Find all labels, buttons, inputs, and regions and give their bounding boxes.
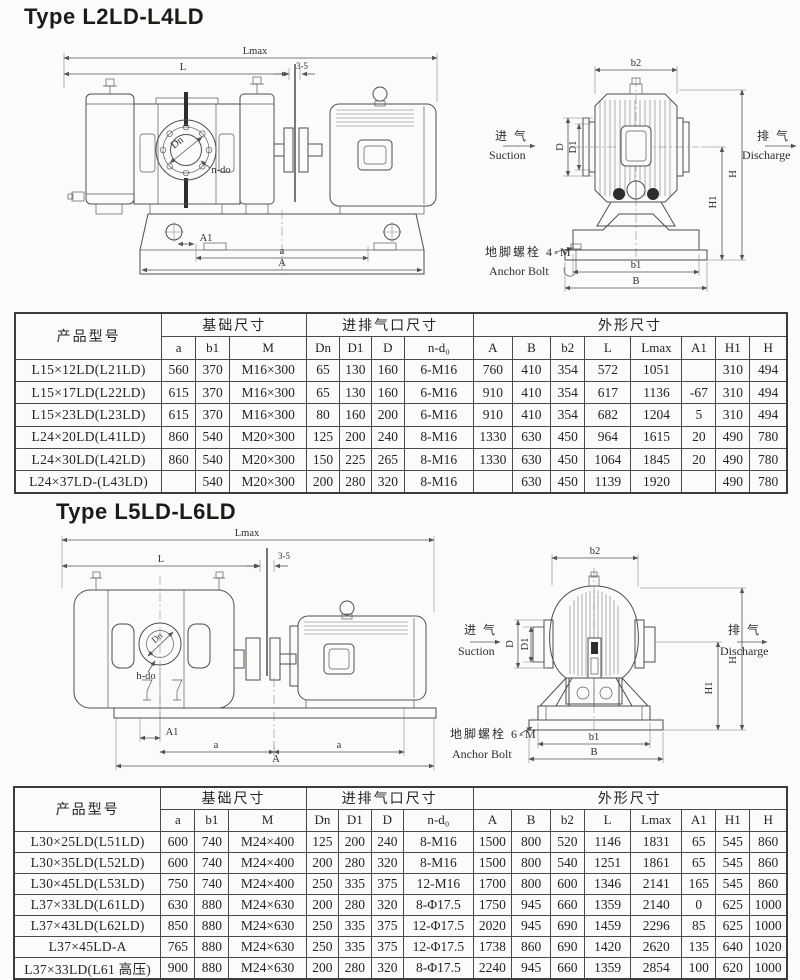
value-cell: 200 xyxy=(306,957,338,979)
value-cell: 800 xyxy=(512,831,551,852)
col-header-model: 产品型号 xyxy=(14,787,161,831)
value-cell: 410 xyxy=(512,359,551,381)
col-header: L xyxy=(584,809,630,831)
col-group-header: 进排气口尺寸 xyxy=(307,313,474,336)
value-cell: 620 xyxy=(716,957,750,979)
value-cell: 1000 xyxy=(750,957,787,979)
dim-lmax-label: Lmax xyxy=(243,46,268,57)
anchor-bolt-label-cn: 地脚螺栓 6-M xyxy=(450,726,538,741)
value-cell: 240 xyxy=(371,831,403,852)
value-cell: 780 xyxy=(750,426,787,448)
dim-b1-label: b1 xyxy=(589,732,600,743)
value-cell: 250 xyxy=(306,936,338,957)
motor-side-outline xyxy=(274,87,436,214)
col-header-model: 产品型号 xyxy=(15,313,162,359)
value-cell: 740 xyxy=(195,873,229,894)
value-cell: 200 xyxy=(339,426,371,448)
value-cell: 540 xyxy=(550,852,584,873)
value-cell: 494 xyxy=(750,381,787,403)
value-cell: 320 xyxy=(371,894,403,915)
lifting-eye xyxy=(340,601,354,615)
value-cell: 250 xyxy=(306,915,338,936)
anchor-bolt-label-en: Anchor Bolt xyxy=(452,747,512,761)
dim-A-label: A xyxy=(278,258,286,269)
table-row: L24×37LD-(L43LD)540M20×3002002803208-M16… xyxy=(15,471,787,493)
value-cell: 880 xyxy=(195,915,229,936)
value-cell: 780 xyxy=(750,471,787,493)
value-cell: M24×630 xyxy=(229,894,306,915)
value-cell: 850 xyxy=(161,915,195,936)
value-cell xyxy=(682,471,716,493)
value-cell: 860 xyxy=(512,936,551,957)
dim-gap-label: 3-5 xyxy=(296,61,308,71)
model-cell: L37×33LD(L61 高压) xyxy=(14,957,161,979)
dim-d-label: D xyxy=(505,640,516,648)
col-header: D1 xyxy=(339,809,371,831)
dim-dn-label: Dn xyxy=(169,134,186,151)
value-cell: 65 xyxy=(682,831,716,852)
col-group-header: 基础尺寸 xyxy=(162,313,307,336)
table-row: L15×23LD(L23LD)615370M16×300801602006-M1… xyxy=(15,404,787,426)
model-cell: L37×43LD(L62LD) xyxy=(14,915,161,936)
value-cell: M20×300 xyxy=(230,449,307,471)
col-header: a xyxy=(162,336,196,359)
value-cell: 740 xyxy=(195,852,229,873)
value-cell: 1000 xyxy=(750,915,787,936)
col-group-header: 进排气口尺寸 xyxy=(306,787,473,809)
value-cell: 2240 xyxy=(473,957,512,979)
suction-label-cn: 进 气 xyxy=(464,622,497,637)
value-cell: 8-Φ17.5 xyxy=(404,957,474,979)
value-cell: 160 xyxy=(372,381,404,403)
col-group-header: 外形尺寸 xyxy=(473,787,787,809)
dim-h1-label: H1 xyxy=(708,196,719,209)
value-cell: 740 xyxy=(195,831,229,852)
value-cell: 1750 xyxy=(473,894,512,915)
col-header: D1 xyxy=(339,336,371,359)
dim-d1-label: D1 xyxy=(568,141,579,154)
value-cell: 860 xyxy=(162,426,196,448)
value-cell: 1204 xyxy=(631,404,682,426)
value-cell: 750 xyxy=(161,873,195,894)
col-header: M xyxy=(230,336,307,359)
col-header: B xyxy=(512,809,551,831)
value-cell: 630 xyxy=(512,426,551,448)
dim-h-label: H xyxy=(728,656,739,664)
model-cell: L30×25LD(L51LD) xyxy=(14,831,161,852)
col-header: Lmax xyxy=(631,809,682,831)
dim-B-label: B xyxy=(632,276,639,287)
value-cell: 310 xyxy=(716,381,750,403)
dim-h1-label: H1 xyxy=(704,682,715,695)
dim-h-label: H xyxy=(728,170,739,178)
value-cell: 1845 xyxy=(631,449,682,471)
value-cell: 85 xyxy=(682,915,716,936)
value-cell: 800 xyxy=(512,852,551,873)
section1-table-wrap: 产品型号基础尺寸进排气口尺寸外形尺寸ab1MDnD1Dn-d₀ABb2LLmax… xyxy=(14,312,788,494)
value-cell: 945 xyxy=(512,915,551,936)
value-cell: 280 xyxy=(339,894,371,915)
value-cell: 572 xyxy=(585,359,631,381)
table-row: L37×33LD(L61 高压)900880M24×6302002803208-… xyxy=(14,957,787,979)
value-cell: 1064 xyxy=(585,449,631,471)
value-cell: 160 xyxy=(372,359,404,381)
suction-label-en: Suction xyxy=(458,644,495,658)
value-cell: 200 xyxy=(372,404,404,426)
col-header: Dn xyxy=(306,809,338,831)
value-cell: 0 xyxy=(682,894,716,915)
col-group-header: 基础尺寸 xyxy=(161,787,306,809)
col-header: b1 xyxy=(196,336,230,359)
value-cell: 625 xyxy=(716,894,750,915)
value-cell: -67 xyxy=(682,381,716,403)
value-cell: 2620 xyxy=(631,936,682,957)
value-cell: 945 xyxy=(512,894,551,915)
value-cell: 1359 xyxy=(584,894,630,915)
model-cell: L37×33LD(L61LD) xyxy=(14,894,161,915)
value-cell: 1920 xyxy=(631,471,682,493)
value-cell: 8-Φ17.5 xyxy=(404,894,474,915)
col-header: M xyxy=(229,809,306,831)
col-header: D xyxy=(371,809,403,831)
spec-table-l2ld-l4ld: 产品型号基础尺寸进排气口尺寸外形尺寸ab1MDnD1Dn-d₀ABb2LLmax… xyxy=(14,312,788,494)
section2-end-view-drawing: b2 D D1 进 气 Suction 排 气 Discharge H H1 地… xyxy=(442,528,800,780)
value-cell: 200 xyxy=(306,894,338,915)
value-cell: 860 xyxy=(750,831,787,852)
spec-table-l5ld-l6ld: 产品型号基础尺寸进排气口尺寸外形尺寸ab1MDnD1Dn-d₀ABb2LLmax… xyxy=(13,786,788,980)
value-cell: 6-M16 xyxy=(404,404,473,426)
value-cell: 540 xyxy=(196,426,230,448)
value-cell: 1020 xyxy=(750,936,787,957)
value-cell: 1861 xyxy=(631,852,682,873)
dim-ndo-label: n-do xyxy=(211,165,230,176)
col-header: Dn xyxy=(307,336,339,359)
discharge-label-en: Discharge xyxy=(720,644,768,658)
value-cell: 8-M16 xyxy=(404,471,473,493)
value-cell: 545 xyxy=(716,852,750,873)
value-cell: M24×400 xyxy=(229,852,306,873)
col-header: A xyxy=(473,809,512,831)
value-cell: 354 xyxy=(551,381,585,403)
dim-a1-label: A1 xyxy=(166,727,179,738)
col-header: D xyxy=(372,336,404,359)
table-row: L15×12LD(L21LD)560370M16×300651301606-M1… xyxy=(15,359,787,381)
value-cell: 625 xyxy=(716,915,750,936)
suction-label-en: Suction xyxy=(489,148,526,162)
value-cell: 490 xyxy=(716,426,750,448)
value-cell: 545 xyxy=(716,831,750,852)
value-cell: 225 xyxy=(339,449,371,471)
value-cell: 630 xyxy=(161,894,195,915)
value-cell: 780 xyxy=(750,449,787,471)
value-cell: 200 xyxy=(339,831,371,852)
value-cell: 200 xyxy=(306,852,338,873)
value-cell: 320 xyxy=(371,957,403,979)
table-row: L30×45LD(L53LD)750740M24×40025033537512-… xyxy=(14,873,787,894)
table-row: L37×45LD-A765880M24×63025033537512-Φ17.5… xyxy=(14,936,787,957)
value-cell: M20×300 xyxy=(230,426,307,448)
value-cell: 250 xyxy=(306,873,338,894)
lifting-eye xyxy=(373,87,387,101)
value-cell: 8-M16 xyxy=(404,852,474,873)
value-cell: 240 xyxy=(372,426,404,448)
model-cell: L15×17LD(L22LD) xyxy=(15,381,162,403)
section2-title: Type L5LD-L6LD xyxy=(56,499,236,525)
col-header: A xyxy=(474,336,513,359)
value-cell: 880 xyxy=(195,894,229,915)
value-cell: 630 xyxy=(512,471,551,493)
value-cell: 615 xyxy=(162,404,196,426)
dim-A-label: A xyxy=(272,754,280,765)
value-cell: 65 xyxy=(307,359,339,381)
value-cell xyxy=(682,359,716,381)
value-cell: 165 xyxy=(682,873,716,894)
value-cell: 354 xyxy=(551,404,585,426)
value-cell: 1139 xyxy=(585,471,631,493)
value-cell: 2296 xyxy=(631,915,682,936)
value-cell: 900 xyxy=(161,957,195,979)
value-cell: 280 xyxy=(339,957,371,979)
value-cell: 6-M16 xyxy=(404,381,473,403)
col-header: H1 xyxy=(716,336,750,359)
col-header: Lmax xyxy=(631,336,682,359)
model-cell: L15×12LD(L21LD) xyxy=(15,359,162,381)
value-cell: 8-M16 xyxy=(404,831,474,852)
value-cell: 1459 xyxy=(584,915,630,936)
value-cell: 630 xyxy=(512,449,551,471)
value-cell: 1346 xyxy=(584,873,630,894)
dim-dn-label: Dn xyxy=(150,630,165,645)
dim-l-label: L xyxy=(158,554,164,565)
value-cell: 1500 xyxy=(473,831,512,852)
value-cell: 20 xyxy=(682,426,716,448)
value-cell: 370 xyxy=(196,404,230,426)
value-cell: 660 xyxy=(550,957,584,979)
value-cell: 375 xyxy=(371,915,403,936)
table-row: L30×35LD(L52LD)600740M24×4002002803208-M… xyxy=(14,852,787,873)
value-cell: M24×630 xyxy=(229,915,306,936)
value-cell: 1831 xyxy=(631,831,682,852)
value-cell: M24×400 xyxy=(229,831,306,852)
value-cell: 135 xyxy=(682,936,716,957)
value-cell: 65 xyxy=(682,852,716,873)
table-row: L30×25LD(L51LD)600740M24×4001252002408-M… xyxy=(14,831,787,852)
value-cell: 660 xyxy=(550,894,584,915)
discharge-label-cn: 排 气 xyxy=(757,128,790,143)
value-cell: 410 xyxy=(512,404,551,426)
value-cell: 860 xyxy=(750,873,787,894)
anchor-bolt-label-cn: 地脚螺栓 4-M xyxy=(485,244,573,259)
col-header: b2 xyxy=(551,336,585,359)
value-cell: 690 xyxy=(550,915,584,936)
col-header: b2 xyxy=(550,809,584,831)
section1-side-view-drawing: Lmax L 3-5 Dn n-do xyxy=(58,44,445,308)
value-cell: 2854 xyxy=(631,957,682,979)
value-cell: 1500 xyxy=(473,852,512,873)
value-cell: 320 xyxy=(372,471,404,493)
col-group-header: 外形尺寸 xyxy=(474,313,787,336)
dim-b1-label: b1 xyxy=(631,260,642,271)
value-cell: 280 xyxy=(339,471,371,493)
value-cell: 690 xyxy=(550,936,584,957)
anchor-bolt-label-en: Anchor Bolt xyxy=(489,264,549,278)
value-cell: 130 xyxy=(339,381,371,403)
value-cell: 1051 xyxy=(631,359,682,381)
value-cell: 800 xyxy=(512,873,551,894)
col-header: H xyxy=(750,336,787,359)
value-cell: M16×300 xyxy=(230,404,307,426)
value-cell: 490 xyxy=(716,471,750,493)
value-cell: 450 xyxy=(551,449,585,471)
value-cell: 65 xyxy=(307,381,339,403)
value-cell: 1136 xyxy=(631,381,682,403)
value-cell: 1615 xyxy=(631,426,682,448)
discharge-label-cn: 排 气 xyxy=(728,622,761,637)
dim-gap-label: 3-5 xyxy=(278,551,290,561)
catalog-page: { "sections": [ { "title": "Type L2LD-L4… xyxy=(0,0,800,976)
baseplate-side xyxy=(114,708,436,718)
model-cell: L24×20LD(L41LD) xyxy=(15,426,162,448)
col-header: B xyxy=(512,336,551,359)
dim-l-label: L xyxy=(180,62,186,73)
section1-title: Type L2LD-L4LD xyxy=(24,4,204,30)
value-cell: 600 xyxy=(161,852,195,873)
value-cell: 1700 xyxy=(473,873,512,894)
model-cell: L30×45LD(L53LD) xyxy=(14,873,161,894)
value-cell: 560 xyxy=(162,359,196,381)
dim-B-label: B xyxy=(590,747,597,758)
value-cell: 860 xyxy=(750,852,787,873)
value-cell: 1738 xyxy=(473,936,512,957)
value-cell: 2140 xyxy=(631,894,682,915)
value-cell: 375 xyxy=(371,936,403,957)
value-cell: M16×300 xyxy=(230,359,307,381)
value-cell xyxy=(474,471,513,493)
value-cell: 5 xyxy=(682,404,716,426)
dim-a-right-label: a xyxy=(337,740,342,751)
value-cell: M24×630 xyxy=(229,957,306,979)
value-cell: 6-M16 xyxy=(404,359,473,381)
value-cell: 335 xyxy=(339,936,371,957)
value-cell xyxy=(162,471,196,493)
value-cell: 682 xyxy=(585,404,631,426)
dim-a-label: a xyxy=(280,246,285,257)
value-cell: 617 xyxy=(585,381,631,403)
value-cell: 12-Φ17.5 xyxy=(404,915,474,936)
value-cell: 880 xyxy=(195,936,229,957)
dim-lmax-label: Lmax xyxy=(235,528,260,539)
value-cell: M20×300 xyxy=(230,471,307,493)
dim-a-left-label: a xyxy=(214,740,219,751)
value-cell: 370 xyxy=(196,381,230,403)
value-cell: 354 xyxy=(551,359,585,381)
value-cell: 1146 xyxy=(584,831,630,852)
value-cell: M24×630 xyxy=(229,936,306,957)
value-cell: 540 xyxy=(196,449,230,471)
value-cell: 1359 xyxy=(584,957,630,979)
value-cell: 494 xyxy=(750,404,787,426)
value-cell: 600 xyxy=(550,873,584,894)
value-cell: 310 xyxy=(716,404,750,426)
value-cell: 280 xyxy=(339,852,371,873)
col-header: A1 xyxy=(682,809,716,831)
value-cell: 20 xyxy=(682,449,716,471)
table-row: L37×33LD(L61LD)630880M24×6302002803208-Φ… xyxy=(14,894,787,915)
suction-label-cn: 进 气 xyxy=(495,128,528,143)
value-cell: 80 xyxy=(307,404,339,426)
value-cell: 370 xyxy=(196,359,230,381)
dim-d1-label: D1 xyxy=(520,638,531,651)
section2-table-wrap: 产品型号基础尺寸进排气口尺寸外形尺寸ab1MDnD1Dn-d₀ABb2LLmax… xyxy=(13,786,788,980)
value-cell: 1420 xyxy=(584,936,630,957)
value-cell: 265 xyxy=(372,449,404,471)
value-cell: 520 xyxy=(550,831,584,852)
table-row: L37×43LD(L62LD)850880M24×63025033537512-… xyxy=(14,915,787,936)
col-header: a xyxy=(161,809,195,831)
value-cell: 545 xyxy=(716,873,750,894)
value-cell: 1330 xyxy=(474,426,513,448)
col-header: n-d₀ xyxy=(404,336,473,359)
value-cell: 2141 xyxy=(631,873,682,894)
dim-b2-label: b2 xyxy=(590,546,601,557)
value-cell: 12-M16 xyxy=(404,873,474,894)
value-cell: 600 xyxy=(161,831,195,852)
value-cell: 8-M16 xyxy=(404,449,473,471)
value-cell: 910 xyxy=(474,381,513,403)
value-cell: 410 xyxy=(512,381,551,403)
value-cell: 964 xyxy=(585,426,631,448)
value-cell: 910 xyxy=(474,404,513,426)
value-cell: 945 xyxy=(512,957,551,979)
value-cell: 860 xyxy=(162,449,196,471)
model-cell: L37×45LD-A xyxy=(14,936,161,957)
col-header: H1 xyxy=(716,809,750,831)
section2-side-view-drawing: Lmax L 3-5 Dn h-do A1 a a A xyxy=(56,528,448,780)
value-cell: 12-Φ17.5 xyxy=(404,936,474,957)
table-row: L24×20LD(L41LD)860540M20×3001252002408-M… xyxy=(15,426,787,448)
value-cell: 450 xyxy=(551,471,585,493)
discharge-label-en: Discharge xyxy=(742,148,790,162)
dim-b2-label: b2 xyxy=(631,58,642,69)
table-row: L24×30LD(L42LD)860540M20×3001502252658-M… xyxy=(15,449,787,471)
value-cell: 375 xyxy=(371,873,403,894)
value-cell: 450 xyxy=(551,426,585,448)
value-cell: 2020 xyxy=(473,915,512,936)
value-cell: 150 xyxy=(307,449,339,471)
dim-ndo-label: h-do xyxy=(136,671,155,682)
value-cell: 335 xyxy=(339,873,371,894)
model-cell: L24×30LD(L42LD) xyxy=(15,449,162,471)
value-cell: 640 xyxy=(716,936,750,957)
value-cell: 540 xyxy=(196,471,230,493)
model-cell: L24×37LD-(L43LD) xyxy=(15,471,162,493)
col-header: L xyxy=(585,336,631,359)
value-cell: 335 xyxy=(339,915,371,936)
value-cell: 1000 xyxy=(750,894,787,915)
dim-a1-label: A1 xyxy=(200,233,213,244)
col-header: b1 xyxy=(195,809,229,831)
model-cell: L30×35LD(L52LD) xyxy=(14,852,161,873)
value-cell: 880 xyxy=(195,957,229,979)
value-cell: 310 xyxy=(716,359,750,381)
value-cell: 160 xyxy=(339,404,371,426)
section1-end-view-drawing: b2 D D1 进 气 Suction 排 气 Discharge H H1 地… xyxy=(445,44,800,308)
value-cell: 760 xyxy=(474,359,513,381)
value-cell: 1330 xyxy=(474,449,513,471)
value-cell: 100 xyxy=(682,957,716,979)
model-cell: L15×23LD(L23LD) xyxy=(15,404,162,426)
table-row: L15×17LD(L22LD)615370M16×300651301606-M1… xyxy=(15,381,787,403)
